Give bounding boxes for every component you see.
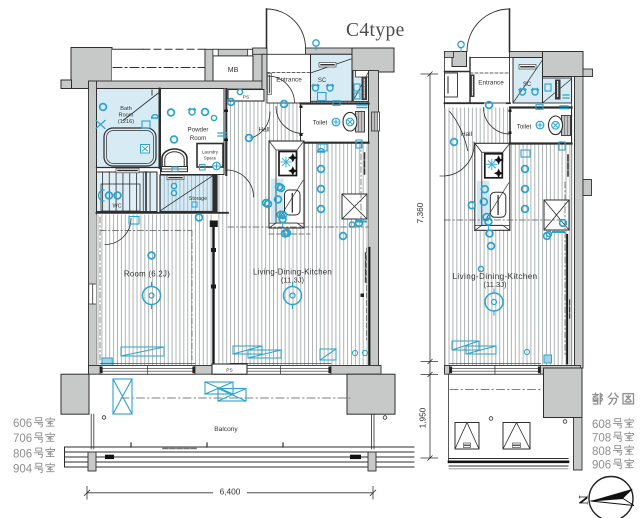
svg-text:Toilet: Toilet bbox=[313, 120, 328, 127]
svg-text:(1216): (1216) bbox=[118, 119, 134, 125]
svg-text:608: 608 bbox=[592, 419, 611, 431]
svg-text:808: 808 bbox=[592, 446, 611, 458]
svg-text:SC: SC bbox=[523, 82, 532, 88]
svg-text:606: 606 bbox=[13, 418, 32, 430]
svg-text:Entrance: Entrance bbox=[276, 77, 302, 84]
svg-text:1,950: 1,950 bbox=[418, 407, 428, 428]
svg-text:Space: Space bbox=[204, 156, 217, 161]
svg-text:Hall: Hall bbox=[258, 127, 269, 134]
svg-text:Powder: Powder bbox=[188, 127, 209, 134]
svg-text:Bath: Bath bbox=[120, 106, 132, 112]
svg-text:WC: WC bbox=[113, 204, 122, 210]
svg-text:706: 706 bbox=[13, 433, 32, 445]
svg-text:C4type: C4type bbox=[346, 20, 405, 41]
svg-text:SC: SC bbox=[318, 78, 327, 84]
svg-text:7,360: 7,360 bbox=[415, 202, 425, 223]
svg-text:(11.3J): (11.3J) bbox=[483, 280, 507, 289]
svg-text:Storage: Storage bbox=[189, 196, 207, 202]
svg-text:906: 906 bbox=[592, 460, 611, 472]
svg-text:708: 708 bbox=[592, 433, 611, 445]
svg-text:Entrance: Entrance bbox=[478, 80, 504, 87]
svg-text:Laundry: Laundry bbox=[202, 150, 219, 155]
svg-text:Room (6.2J): Room (6.2J) bbox=[124, 270, 170, 279]
svg-text:904: 904 bbox=[13, 464, 33, 476]
svg-text:806: 806 bbox=[13, 448, 32, 460]
svg-text:Toilet: Toilet bbox=[517, 124, 532, 131]
svg-text:Room: Room bbox=[190, 135, 207, 142]
svg-text:6,400: 6,400 bbox=[220, 487, 241, 497]
svg-text:N: N bbox=[576, 495, 591, 505]
svg-text:PS: PS bbox=[226, 368, 232, 374]
svg-text:Balcony: Balcony bbox=[214, 426, 238, 433]
svg-text:PS: PS bbox=[243, 95, 249, 101]
svg-text:MB: MB bbox=[228, 67, 239, 74]
